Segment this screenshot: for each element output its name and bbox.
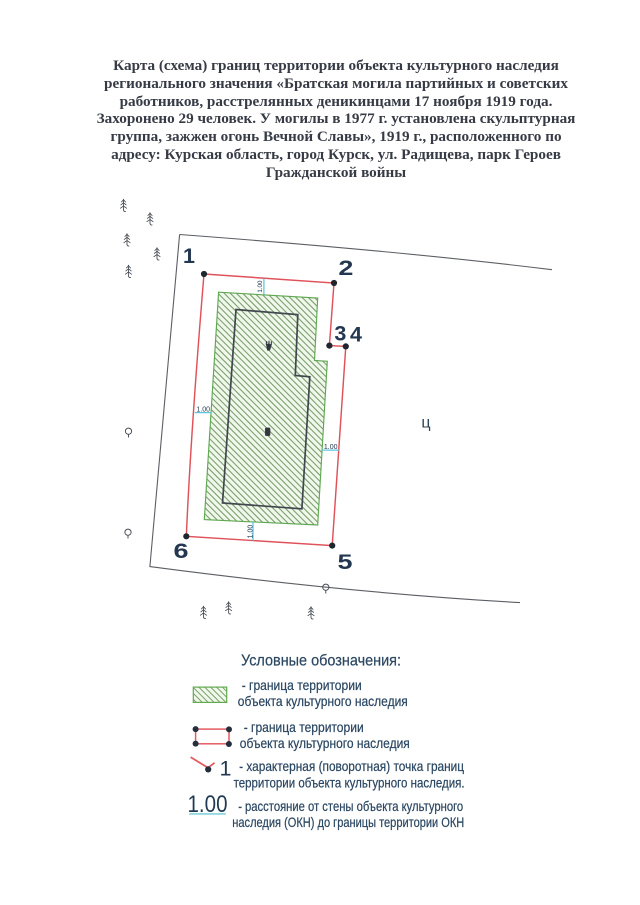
svg-text:6: 6 [174, 539, 189, 563]
svg-text:- расстояние от стены объекта: - расстояние от стены объекта культурног… [238, 799, 463, 814]
svg-text:- характерная (поворотная) точ: - характерная (поворотная) точка границ [239, 759, 464, 774]
svg-text:2: 2 [338, 256, 353, 280]
svg-text:- граница территории: - граница территории [244, 720, 364, 735]
svg-text:1.00: 1.00 [248, 525, 255, 539]
svg-text:1.00: 1.00 [257, 280, 264, 293]
svg-text:1: 1 [183, 244, 195, 268]
svg-text:3: 3 [334, 322, 346, 346]
svg-text:наследия (ОКН) до границы терр: наследия (ОКН) до границы территории ОКН [232, 815, 464, 830]
svg-text:территории объекта культурного: территории объекта культурного наследия. [234, 776, 465, 791]
svg-text:1.00: 1.00 [196, 407, 210, 414]
svg-text:- граница территории: - граница территории [242, 678, 362, 693]
svg-text:4: 4 [350, 322, 362, 346]
svg-text:Условные обозначения:: Условные обозначения: [241, 652, 401, 669]
svg-text:объекта культурного наследия: объекта культурного наследия [240, 736, 410, 751]
svg-text:5: 5 [338, 550, 353, 574]
svg-text:1: 1 [220, 756, 232, 780]
svg-text:1.00: 1.00 [324, 444, 338, 451]
svg-text:объекта культурного наследия: объекта культурного наследия [238, 694, 408, 709]
svg-text:ц: ц [421, 415, 430, 432]
